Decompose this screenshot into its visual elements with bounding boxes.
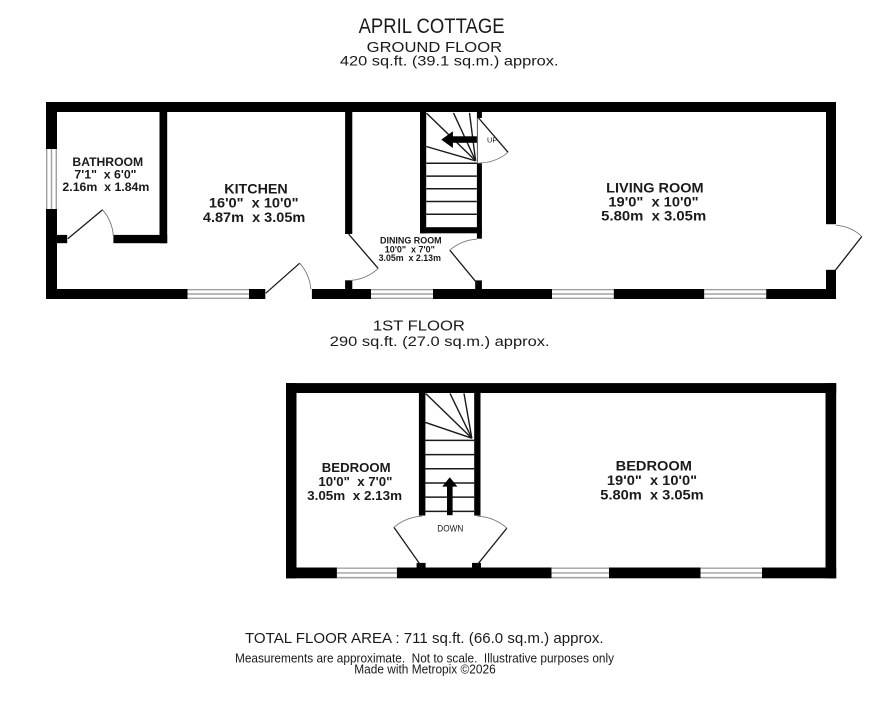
svg-text:420 sq.ft. (39.1 sq.m.) approx: 420 sq.ft. (39.1 sq.m.) approx.	[340, 54, 559, 70]
svg-text:DOWN: DOWN	[437, 523, 463, 533]
svg-text:4.87m x 3.05m: 4.87m x 3.05m	[203, 210, 305, 225]
svg-text:10'0" x 7'0": 10'0" x 7'0"	[318, 475, 392, 489]
svg-text:BATHROOM: BATHROOM	[72, 156, 143, 169]
svg-text:3.05m x 2.13m: 3.05m x 2.13m	[379, 253, 441, 263]
svg-text:KITCHEN: KITCHEN	[224, 181, 288, 196]
svg-text:BEDROOM: BEDROOM	[322, 461, 391, 475]
svg-text:19'0" x 10'0": 19'0" x 10'0"	[607, 473, 697, 488]
svg-text:BEDROOM: BEDROOM	[616, 458, 692, 473]
svg-text:290 sq.ft. (27.0 sq.m.) approx: 290 sq.ft. (27.0 sq.m.) approx.	[330, 334, 550, 350]
svg-text:7'1" x 6'0": 7'1" x 6'0"	[74, 169, 136, 182]
svg-text:Made with Metropix ©2026: Made with Metropix ©2026	[354, 663, 495, 677]
svg-text:UP: UP	[487, 135, 497, 144]
svg-text:5.80m x 3.05m: 5.80m x 3.05m	[600, 487, 704, 502]
svg-text:APRIL COTTAGE: APRIL COTTAGE	[359, 15, 505, 38]
svg-text:1ST FLOOR: 1ST FLOOR	[373, 318, 465, 334]
svg-text:TOTAL FLOOR AREA : 711 sq.ft.: TOTAL FLOOR AREA : 711 sq.ft. (66.0 sq.m…	[245, 631, 604, 647]
svg-text:3.05m x 2.13m: 3.05m x 2.13m	[307, 489, 402, 503]
svg-text:2.16m x 1.84m: 2.16m x 1.84m	[62, 181, 149, 194]
svg-text:5.80m x 3.05m: 5.80m x 3.05m	[601, 208, 706, 223]
svg-text:16'0" x 10'0": 16'0" x 10'0"	[209, 196, 299, 211]
svg-text:19'0" x 10'0": 19'0" x 10'0"	[608, 195, 698, 210]
svg-text:LIVING ROOM: LIVING ROOM	[606, 180, 704, 195]
